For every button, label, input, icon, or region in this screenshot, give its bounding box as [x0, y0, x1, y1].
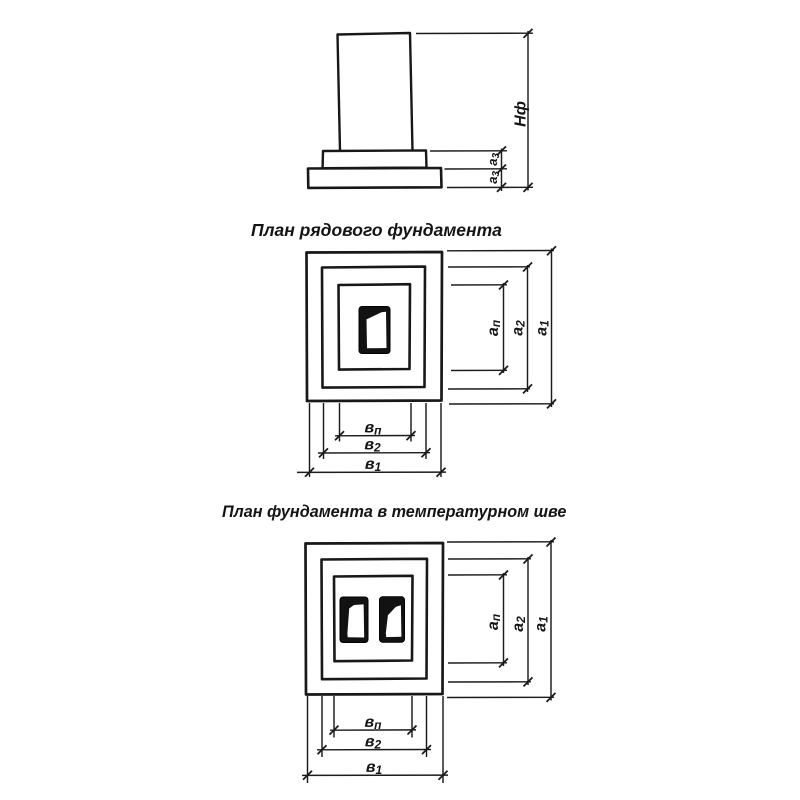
svg-text:План рядового фундамента: План рядового фундамента — [251, 220, 502, 240]
svg-text:а3: а3 — [485, 152, 502, 165]
svg-text:а3: а3 — [485, 171, 502, 184]
svg-text:Нф: Нф — [513, 101, 530, 127]
svg-text:ап: ап — [485, 613, 503, 630]
svg-text:а1: а1 — [534, 320, 552, 336]
svg-text:в1: в1 — [366, 759, 383, 777]
svg-text:вп: вп — [364, 420, 382, 438]
svg-text:а2: а2 — [510, 320, 528, 336]
svg-text:ап: ап — [485, 319, 503, 336]
svg-text:вп: вп — [364, 714, 382, 732]
svg-text:а2: а2 — [510, 616, 528, 632]
svg-text:в1: в1 — [365, 456, 382, 474]
svg-text:в2: в2 — [364, 437, 381, 455]
svg-text:План фундамента в температурно: План фундамента в температурном шве — [222, 503, 566, 521]
svg-text:а1: а1 — [533, 616, 551, 632]
svg-text:в2: в2 — [365, 734, 382, 752]
